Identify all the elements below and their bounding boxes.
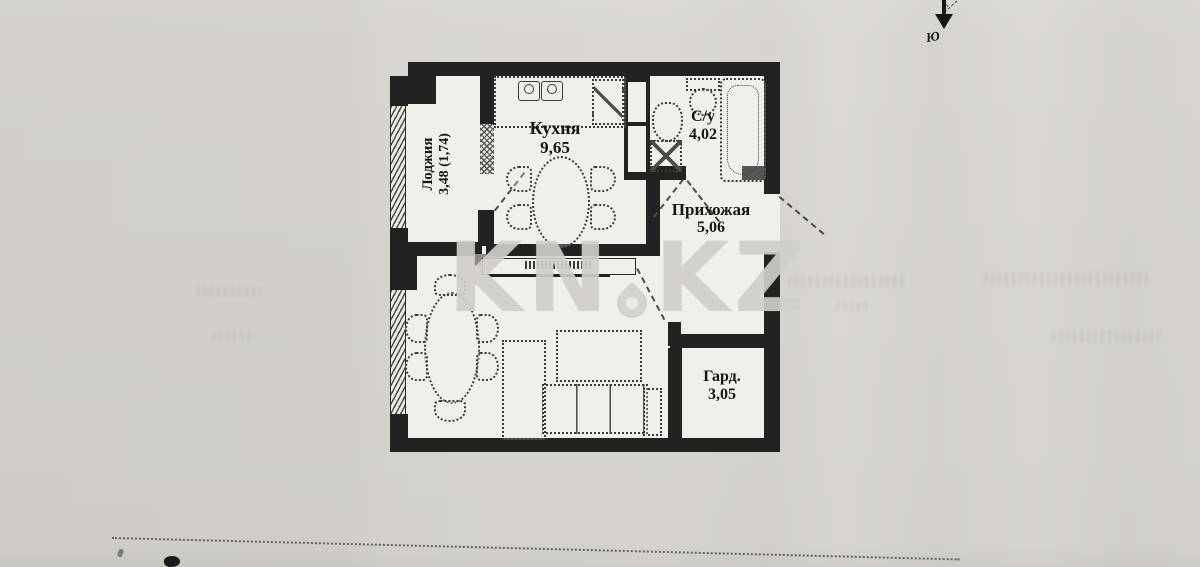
watermark-right-text: KZ xyxy=(655,236,809,320)
cutoff-ink-mark xyxy=(163,555,180,567)
ink-bleed-smudge xyxy=(1052,330,1160,343)
ink-bleed-smudge xyxy=(836,302,872,311)
watermark-droplet-icon xyxy=(611,282,653,324)
coffee-table-icon xyxy=(556,330,642,382)
kitchen-sink-icon xyxy=(541,81,563,101)
compass-icon: Ю xyxy=(906,0,982,52)
ink-bleed-smudge xyxy=(212,332,256,341)
wall-bottom xyxy=(392,438,780,452)
chair-icon xyxy=(476,352,499,381)
room-name: Прихожая xyxy=(642,200,780,219)
chair-icon xyxy=(506,166,532,192)
sofa-icon xyxy=(542,384,648,434)
chair-icon xyxy=(434,400,466,422)
scanned-floor-plan-page: Ю xyxy=(0,0,1200,567)
ink-bleed-smudge xyxy=(984,272,1152,285)
wall-loggia-divider-hatch xyxy=(480,124,494,174)
room-area: 9,65 xyxy=(495,138,615,157)
wall-wardrobe-left xyxy=(668,348,682,438)
compass-arrowhead xyxy=(935,14,953,29)
sofa-icon xyxy=(502,340,546,440)
room-label-kitchen: Кухня 9,65 xyxy=(495,118,615,157)
wall-top xyxy=(408,62,780,76)
wall-wardrobe-top xyxy=(670,334,764,348)
wall-loggia-divider-top xyxy=(480,76,494,124)
wall-loggia-top-block xyxy=(390,76,408,106)
vent-shaft-duct xyxy=(628,82,646,122)
room-name: Кухня xyxy=(495,118,615,138)
watermark-left-text: KN xyxy=(448,236,613,320)
room-name: Лоджия xyxy=(420,94,437,234)
chair-icon xyxy=(405,352,428,381)
washing-machine-icon xyxy=(650,140,682,172)
sofa-arm-icon xyxy=(643,388,662,436)
room-area: 3,48 (1,74) xyxy=(437,94,453,234)
wall-right-upper xyxy=(764,62,780,194)
living-window xyxy=(390,290,406,414)
chair-icon xyxy=(405,314,428,343)
room-area: 3,05 xyxy=(682,386,762,404)
room-area: 4,02 xyxy=(658,126,748,144)
room-label-loggia: Лоджия 3,48 (1,74) xyxy=(420,94,464,234)
bottom-dotted-line xyxy=(112,537,960,560)
room-name: Гард. xyxy=(682,368,762,386)
kitchen-sink-icon xyxy=(518,81,540,101)
wall-corner-living-top xyxy=(390,252,417,290)
chair-icon xyxy=(590,166,616,192)
loggia-window xyxy=(390,106,406,228)
ink-speck xyxy=(117,548,124,557)
room-name: С/у xyxy=(658,108,748,126)
vent-shaft-duct xyxy=(628,126,646,172)
watermark: KN KZ xyxy=(448,236,809,320)
compass-south-label: Ю xyxy=(925,28,941,46)
ink-bleed-smudge xyxy=(196,286,262,297)
room-label-bathroom: С/у 4,02 xyxy=(658,108,748,144)
room-label-wardrobe: Гард. 3,05 xyxy=(682,368,762,404)
